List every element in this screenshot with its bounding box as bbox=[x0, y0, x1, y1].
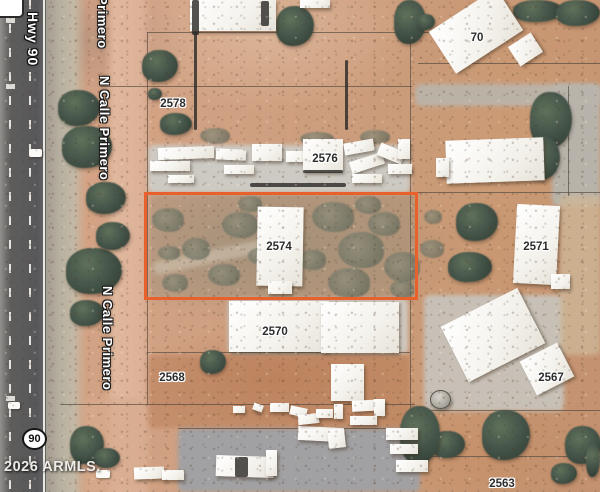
tree bbox=[551, 463, 577, 484]
wall-shadow bbox=[235, 457, 248, 477]
building bbox=[327, 428, 346, 449]
building bbox=[396, 460, 428, 472]
parcel-number-label: 2567 bbox=[538, 372, 564, 384]
highway-90-shield-icon: 90 bbox=[22, 428, 47, 450]
parcel-number-label: 70 bbox=[471, 32, 484, 44]
parcel-line bbox=[418, 63, 600, 64]
parcel-number-label: 2563 bbox=[489, 478, 515, 490]
tree bbox=[142, 50, 178, 82]
tree bbox=[482, 410, 530, 460]
water-tank bbox=[430, 390, 451, 409]
street-name-label: N Calle Primero bbox=[97, 76, 112, 180]
wall-shadow bbox=[303, 170, 343, 173]
building bbox=[162, 470, 184, 480]
building bbox=[334, 404, 343, 419]
parcel-number-label: 2570 bbox=[262, 326, 288, 338]
building bbox=[252, 144, 282, 161]
pavement-pad bbox=[415, 84, 600, 106]
lane-marking bbox=[29, 0, 31, 492]
building bbox=[331, 364, 364, 401]
tree bbox=[160, 113, 192, 135]
scrub-bush bbox=[200, 128, 230, 144]
wall-shadow bbox=[192, 0, 199, 35]
building bbox=[168, 175, 194, 183]
highway-name-label: Hwy 90 bbox=[25, 12, 41, 66]
building bbox=[150, 161, 190, 171]
scrub-bush bbox=[424, 210, 442, 224]
tree bbox=[556, 0, 600, 26]
tree bbox=[448, 252, 492, 282]
wall-shadow bbox=[261, 1, 269, 26]
building bbox=[374, 399, 385, 416]
street-name-label: Primero bbox=[95, 0, 110, 49]
building bbox=[321, 302, 399, 353]
street-name-label: N Calle Primero bbox=[100, 286, 115, 390]
tree bbox=[276, 6, 314, 46]
building bbox=[266, 450, 277, 476]
tree bbox=[417, 14, 435, 30]
highway-90-road bbox=[0, 0, 48, 492]
building bbox=[398, 139, 410, 159]
wall-shadow bbox=[345, 60, 348, 130]
edge-line-marking bbox=[43, 0, 45, 492]
building bbox=[158, 146, 214, 160]
vehicle bbox=[8, 402, 20, 409]
highway-shield-icon-partial bbox=[0, 0, 24, 18]
turn-arrow-marking bbox=[6, 396, 15, 401]
scrub-bush bbox=[420, 240, 444, 258]
parcel-number-label: 2576 bbox=[312, 153, 338, 165]
wall-shadow bbox=[194, 32, 197, 130]
turn-arrow-marking bbox=[6, 84, 15, 89]
tree bbox=[456, 203, 498, 241]
building bbox=[350, 416, 377, 425]
building bbox=[216, 148, 247, 161]
building bbox=[551, 274, 570, 289]
parcel-number-label: 2571 bbox=[523, 241, 549, 253]
parcel-number-label: 2574 bbox=[266, 241, 292, 253]
copyright-watermark: 2026 ARMLS. bbox=[4, 459, 101, 475]
parcel-number-label: 2568 bbox=[159, 372, 185, 384]
building bbox=[134, 466, 164, 479]
building bbox=[352, 174, 382, 183]
building bbox=[445, 137, 544, 183]
satellite-map-canvas[interactable]: Hwy 90 PrimeroN Calle PrimeroN Calle Pri… bbox=[0, 0, 600, 492]
building bbox=[386, 428, 418, 440]
tree bbox=[70, 300, 104, 326]
tree bbox=[586, 443, 600, 477]
parcel-number-label: 2578 bbox=[160, 98, 186, 110]
turn-arrow-marking bbox=[6, 18, 15, 23]
building bbox=[300, 0, 330, 8]
gravel-shoulder bbox=[46, 0, 86, 492]
building bbox=[233, 406, 245, 413]
parcel-line bbox=[410, 192, 600, 193]
wall-shadow bbox=[250, 183, 346, 187]
tree bbox=[58, 90, 100, 126]
vehicle bbox=[29, 149, 42, 157]
building bbox=[508, 33, 543, 67]
building bbox=[388, 164, 412, 174]
building bbox=[316, 409, 333, 418]
lane-marking bbox=[9, 0, 11, 492]
building bbox=[270, 403, 289, 412]
building bbox=[390, 444, 418, 454]
building bbox=[436, 158, 449, 177]
building bbox=[224, 165, 254, 174]
